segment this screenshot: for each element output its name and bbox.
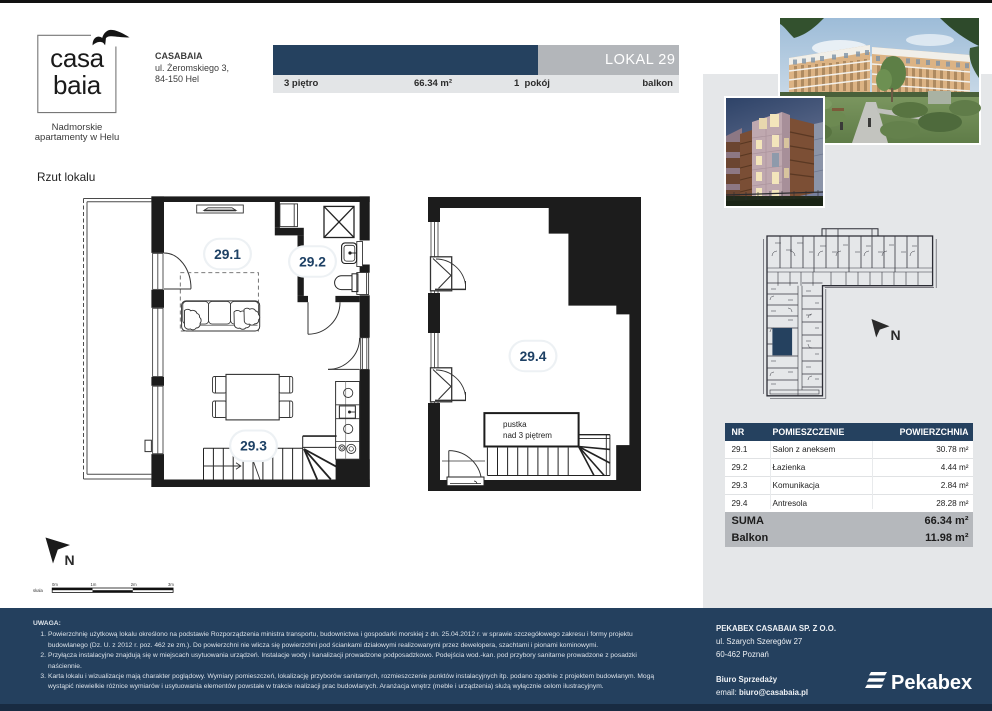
svg-text:3m: 3m <box>168 582 174 587</box>
svg-text:nad 3 piętrem: nad 3 piętrem <box>503 431 552 440</box>
svg-text:skala: skala <box>33 588 43 593</box>
svg-text:pustka: pustka <box>503 420 527 429</box>
svg-text:1m: 1m <box>91 582 97 587</box>
svg-text:29.3: 29.3 <box>240 439 267 454</box>
svg-text:N: N <box>65 552 75 568</box>
svg-text:29.1: 29.1 <box>214 247 241 262</box>
svg-text:2m: 2m <box>131 582 137 587</box>
svg-text:0m: 0m <box>52 582 58 587</box>
svg-text:29.2: 29.2 <box>299 254 326 269</box>
svg-text:N: N <box>891 327 901 343</box>
svg-text:29.4: 29.4 <box>520 349 547 364</box>
